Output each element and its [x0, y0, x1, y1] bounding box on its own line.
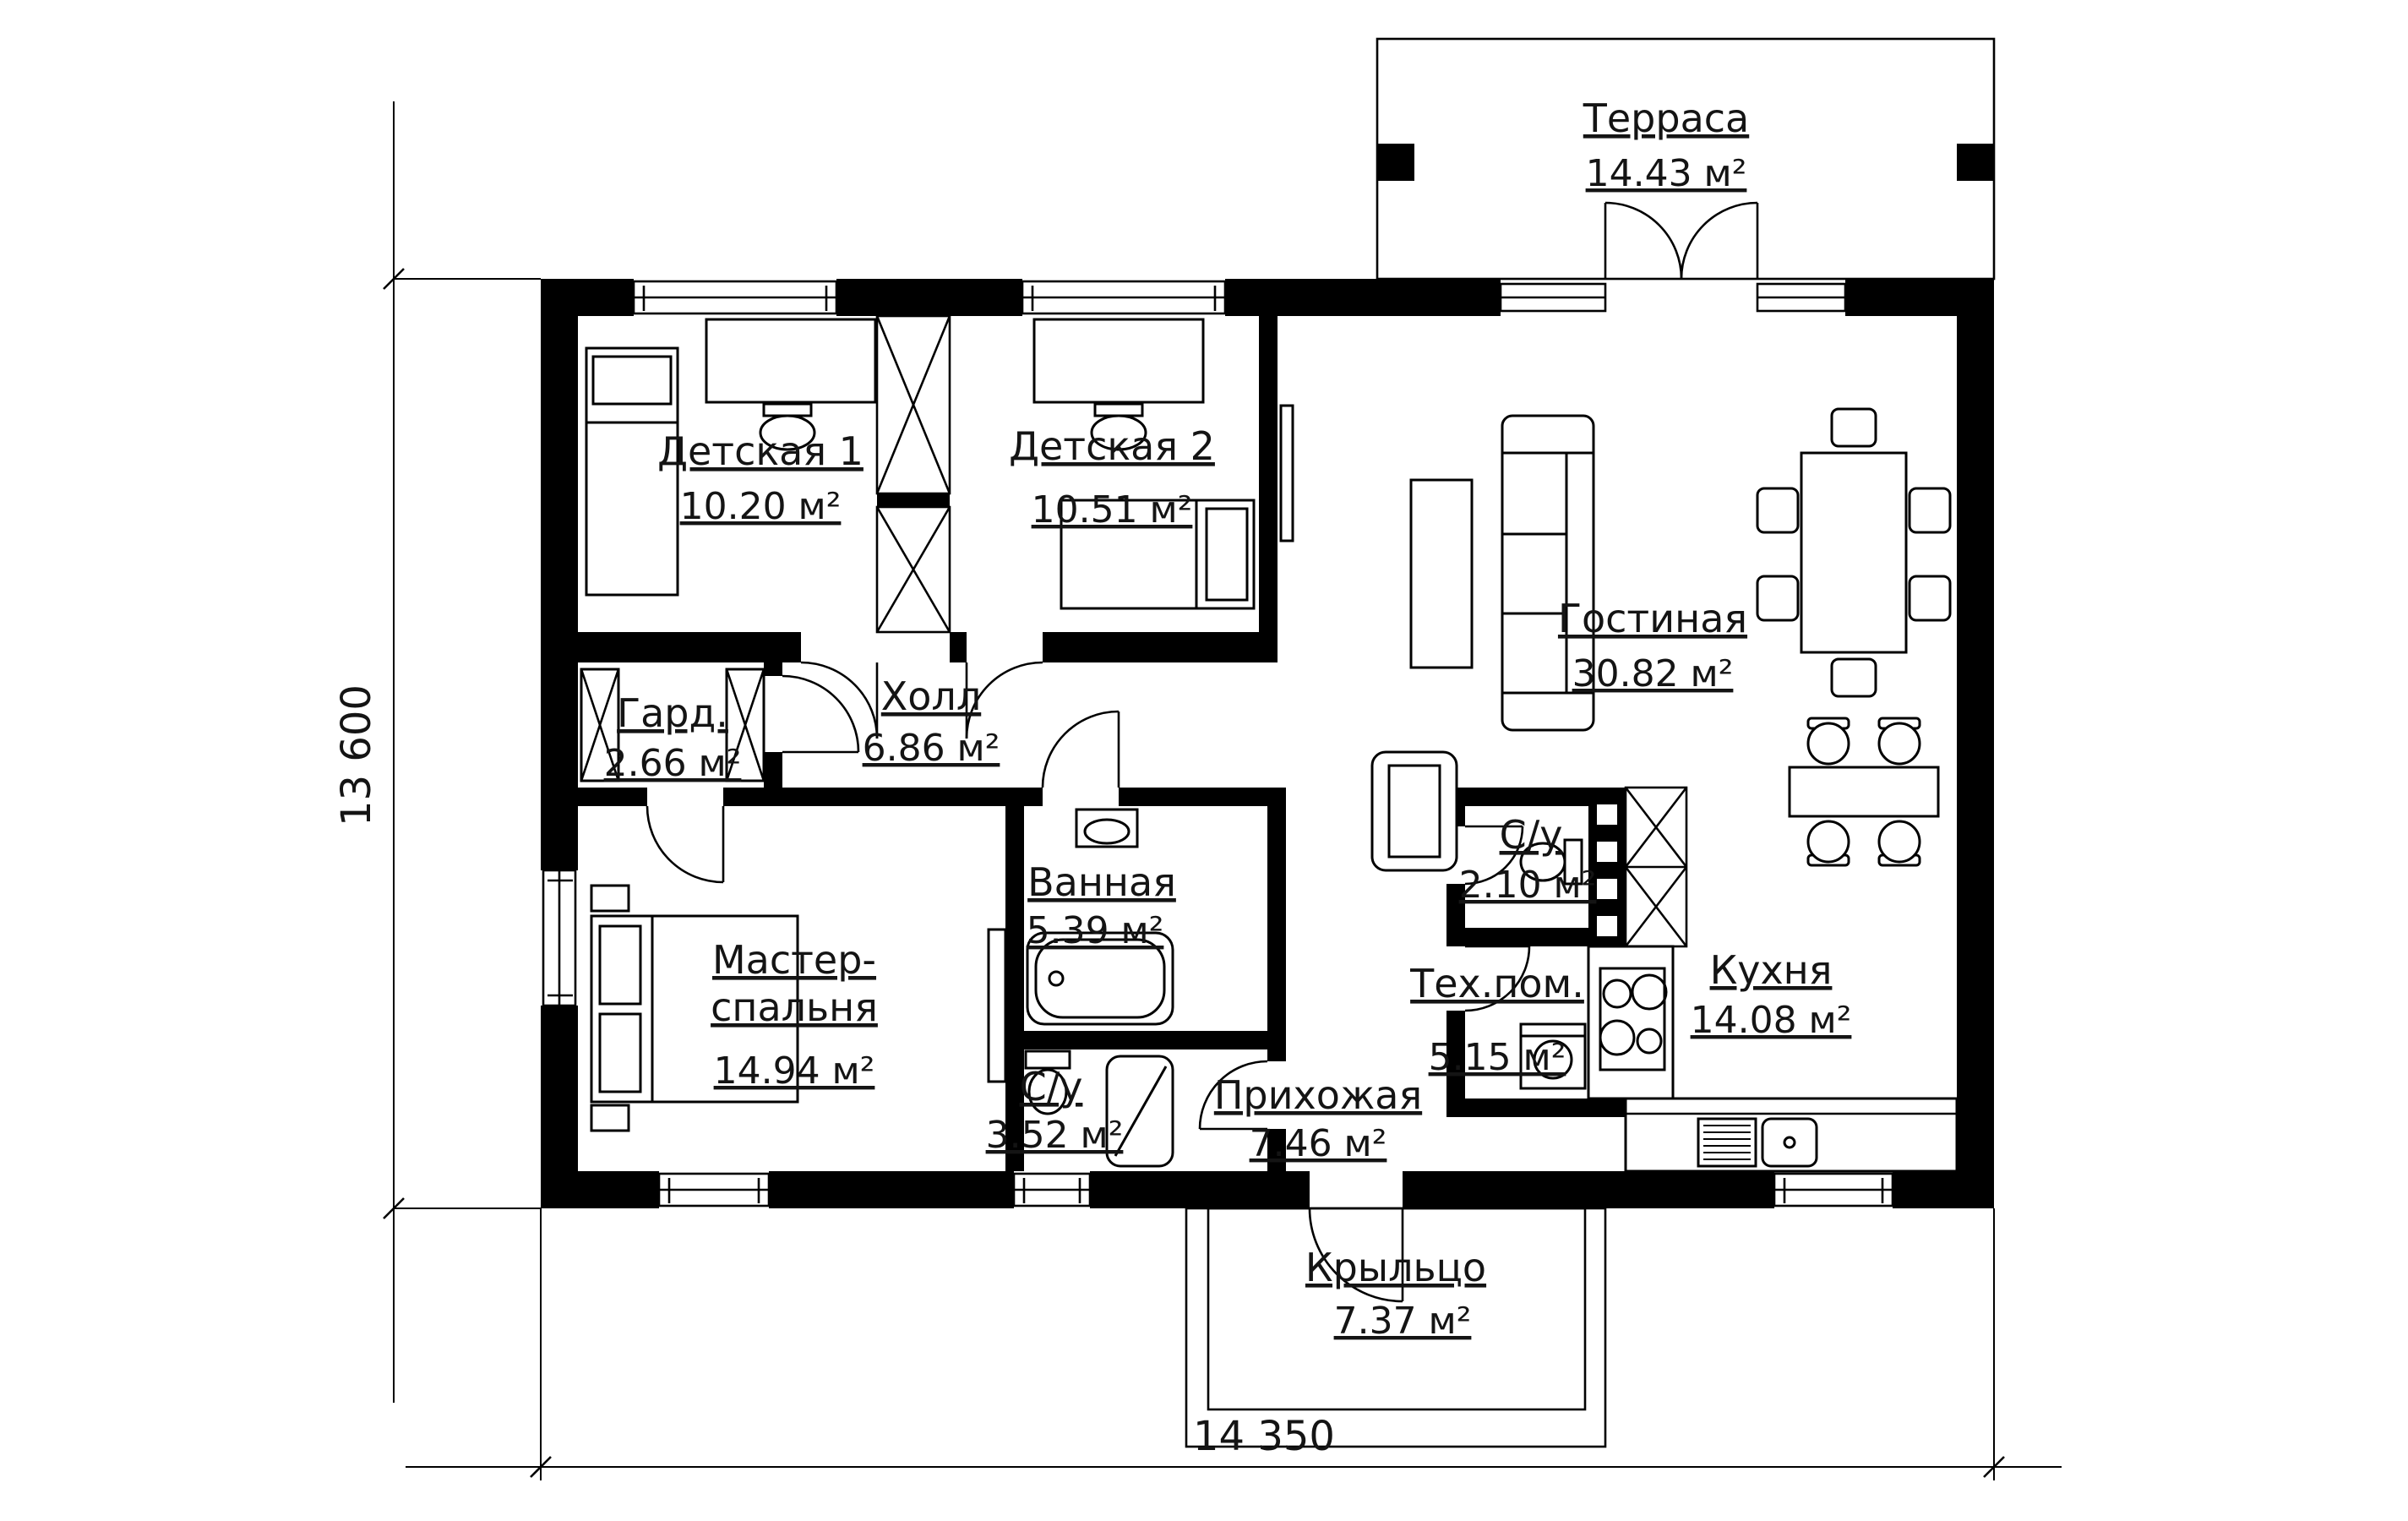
dimension-height-label: 13 600 [333, 684, 380, 826]
coffee-table [1411, 480, 1472, 668]
label-master-name-1: Мастер- [712, 937, 876, 983]
label-entry-area: 7.46 м² [1250, 1122, 1387, 1165]
label-wc-small-name: С/у [1500, 812, 1563, 858]
label-terrace-name: Терраса [1583, 95, 1749, 141]
label-kids1-area: 10.20 м² [680, 485, 842, 528]
dining-chair [1832, 659, 1876, 696]
label-porch-area: 7.37 м² [1334, 1300, 1472, 1343]
label-tech-name: Тех.пом. [1409, 961, 1584, 1006]
label-tech-area: 5.15 м² [1429, 1036, 1566, 1079]
label-master-area: 14.94 м² [714, 1049, 875, 1093]
dining-chair [1757, 488, 1798, 532]
label-wardrobe-name: Гард. [617, 690, 728, 736]
floor-plan-canvas: 13 600 14 350 Терраса 14.43 м² Детская 1… [0, 0, 2408, 1521]
dimension-width-label: 14 350 [1193, 1413, 1335, 1460]
terrace-column-right [1957, 144, 1994, 181]
desk [706, 319, 875, 402]
dining-chair [1910, 576, 1950, 620]
kitchen-chair [1879, 723, 1920, 764]
armchair [1372, 752, 1457, 870]
kitchen-chair [1879, 821, 1920, 862]
label-terrace-area: 14.43 м² [1586, 152, 1747, 195]
kitchen-chair [1808, 723, 1849, 764]
furniture-kitchen [1588, 718, 1957, 1171]
label-wc-big-area: 3.52 м² [986, 1114, 1124, 1157]
floor-plan-sheet: 13 600 14 350 Терраса 14.43 м² Детская 1… [0, 0, 2408, 1521]
label-entry-name: Прихожая [1214, 1072, 1422, 1118]
label-porch-name: Крыльцо [1305, 1245, 1486, 1290]
label-kitchen-area: 14.08 м² [1691, 999, 1852, 1042]
dining-chair [1832, 409, 1876, 446]
label-hall-area: 6.86 м² [863, 727, 1000, 770]
dining-chair [1757, 576, 1798, 620]
dining-chair [1910, 488, 1950, 532]
nightstand [591, 886, 629, 911]
nightstand [591, 1105, 629, 1131]
label-hall-name: Холл [881, 673, 981, 719]
label-kids2-area: 10.51 м² [1032, 488, 1193, 532]
kitchen-counter-bottom [1626, 1098, 1957, 1171]
label-wc-small-area: 2.10 м² [1459, 864, 1597, 907]
tv-console [1281, 406, 1293, 541]
label-bathroom-area: 5.39 м² [1027, 909, 1164, 952]
label-master-name-2: спальня [711, 984, 878, 1030]
dining-table [1801, 453, 1906, 652]
desk [1034, 319, 1203, 402]
pillow [1207, 509, 1247, 600]
dimension-horizontal: 14 350 [406, 1208, 2062, 1480]
label-wardrobe-area: 2.66 м² [604, 742, 742, 785]
label-living-name: Гостиная [1558, 596, 1747, 641]
terrace-column-left [1377, 144, 1414, 181]
pillow [600, 1014, 640, 1092]
dresser [989, 929, 1005, 1082]
pillow [600, 926, 640, 1004]
label-kitchen-name: Кухня [1710, 947, 1833, 993]
chair-back [1095, 404, 1142, 416]
label-wc-big-name: С/у [1020, 1064, 1083, 1109]
dimension-vertical: 13 600 [333, 101, 541, 1403]
label-living-area: 30.82 м² [1572, 652, 1734, 695]
label-kids1-name: Детская 1 [657, 428, 864, 474]
kitchen-table [1790, 767, 1938, 816]
label-kids2-name: Детская 2 [1009, 423, 1215, 469]
kitchen-chair [1808, 821, 1849, 862]
chair-back [764, 404, 811, 416]
pillow [593, 357, 671, 404]
label-bathroom-name: Ванная [1027, 859, 1176, 905]
